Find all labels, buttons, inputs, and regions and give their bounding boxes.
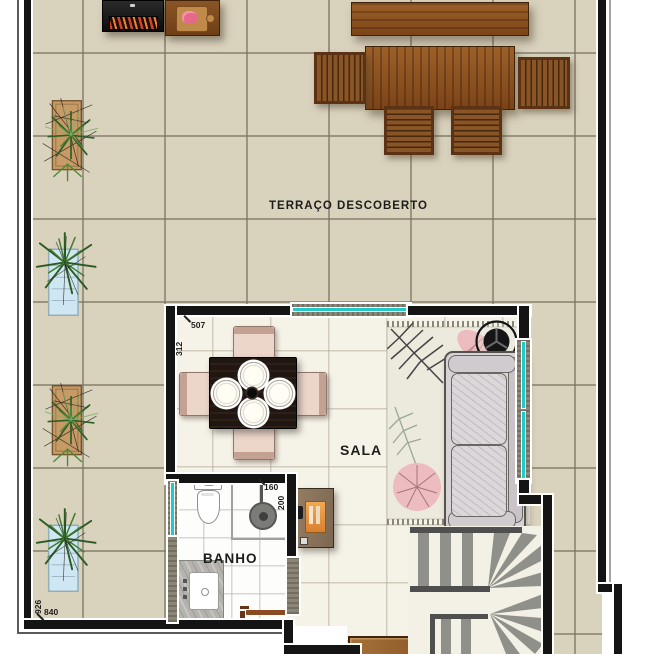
board-handle [206,14,215,23]
dining-chair-icon [233,424,275,460]
faucet-dot [183,587,187,591]
window-icon [522,412,525,480]
wall-bath-left-masonry [168,537,177,622]
outside-right [606,0,654,586]
sink-basin [189,572,219,610]
outside-left [0,0,24,654]
sofa-armrest [448,355,516,373]
table-centerpiece [247,388,257,398]
sofa-cushion [451,445,507,517]
faucet-dot [183,595,187,599]
plate-icon [213,380,240,407]
outside-notch [293,626,347,645]
floor-plan: TERRAÇO DESCOBERTO SALA BANHO 507 312 16… [0,0,654,654]
outdoor-chair-icon [384,106,434,155]
door-icon [246,610,291,615]
banho-label: BANHO [203,551,258,566]
outdoor-chair-icon [518,57,570,109]
toilet-seat-line [201,493,214,496]
window-icon [171,483,174,537]
bottle-icon [309,506,313,524]
dim-terrace-depth: 926 [33,600,43,614]
terrace-label: TERRAÇO DESCOBERTO [269,200,428,212]
shower-head [249,502,277,530]
meat-icon [182,11,198,24]
planter-plant-icon [34,218,100,326]
plate-icon [266,380,293,407]
vanity-sink-icon [176,560,224,620]
contour-line-left [17,0,19,633]
grill-knob [130,4,135,7]
planter-plant-icon [34,498,100,598]
chair-backrest [180,373,187,415]
faucet-dot [183,579,187,583]
bar-cart-bottles [305,501,326,533]
plate-icon [240,399,267,426]
prep-table-icon [165,0,220,36]
wall-unit-bottom [284,645,360,654]
shower-head-center [259,512,268,521]
door-handle [240,611,245,619]
wall-outer-right-lower [614,584,622,654]
chair-backrest [319,373,326,415]
sofa-cushion [451,373,507,445]
contour-line-bottom [17,632,295,634]
cart-detail [300,537,308,545]
outside-right-lower [622,584,654,654]
sink-drain [201,588,209,596]
sala-label: SALA [340,442,382,458]
plate-icon [240,362,267,389]
wall-outer-right [598,0,606,590]
staircase-icon [408,526,544,654]
outdoor-dining-table-icon [365,46,515,110]
outdoor-chair-icon [314,52,366,104]
bbq-grill-icon [102,0,164,32]
shower-icon [231,481,292,540]
window-icon [293,308,409,311]
dim-terrace-width: 840 [44,607,58,617]
dim-shower-depth: 200 [276,496,286,510]
wall-sala-top-left [166,306,294,315]
wall-bathroom-right [287,474,296,562]
bar-cart-icon [297,488,334,548]
wall-outer-left [24,0,31,630]
toilet-icon [197,490,220,524]
planter-plant-icon [40,90,102,190]
chair-backrest [234,452,274,459]
wall-sala-right-upper [519,306,529,342]
contour-line-right [609,0,611,586]
dim-sala-depth: 312 [174,342,184,356]
wall-sala-left [166,306,175,483]
chair-backrest [234,327,274,334]
planter-plant-icon [40,372,102,478]
outdoor-bench-icon [351,2,529,36]
dim-sala-width: 507 [191,320,205,330]
wall-bath-right-masonry [287,558,299,614]
wall-stair-right [543,495,552,654]
wall-sala-top-right [408,306,530,315]
sofa-icon [444,351,526,533]
shower-arm [260,481,263,504]
door-hinge [240,606,249,609]
grill-coals [109,16,158,30]
outdoor-chair-icon [451,106,502,155]
window-icon [522,342,525,408]
wall-outer-bottom [24,620,292,629]
bottle-icon [316,506,320,524]
dim-shower-width: 160 [264,482,278,492]
